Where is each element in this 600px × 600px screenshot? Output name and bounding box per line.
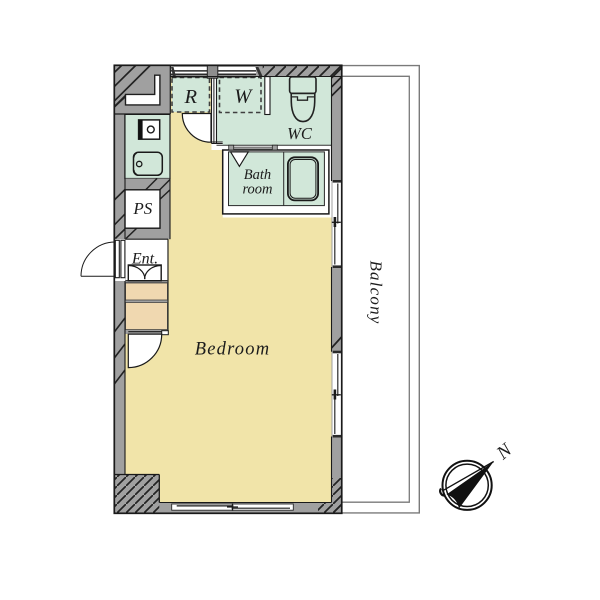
svg-text:WC: WC (287, 124, 313, 143)
svg-text:Ent.: Ent. (131, 251, 158, 268)
svg-text:PS: PS (132, 199, 152, 218)
svg-text:room: room (242, 182, 272, 198)
svg-text:R: R (184, 86, 198, 108)
svg-text:Balcony: Balcony (367, 260, 386, 324)
svg-text:W: W (234, 86, 253, 108)
svg-text:Bedroom: Bedroom (195, 340, 271, 360)
